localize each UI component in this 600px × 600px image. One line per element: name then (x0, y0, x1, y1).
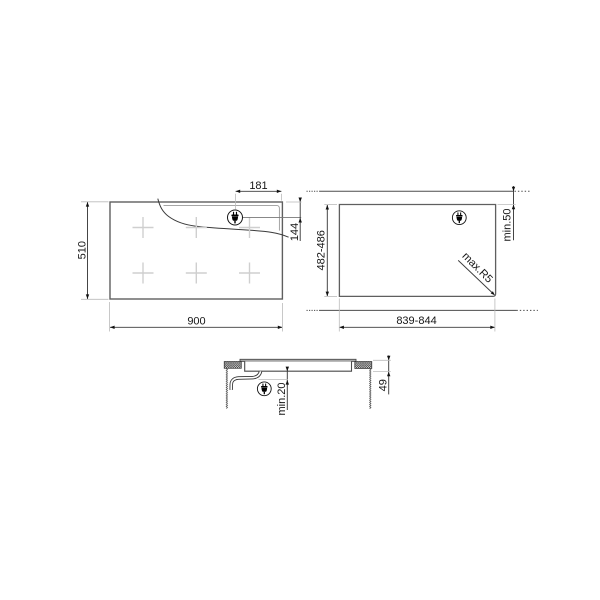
svg-text:max.R5: max.R5 (459, 250, 494, 285)
svg-text:144: 144 (289, 223, 301, 241)
svg-text:510: 510 (77, 241, 89, 259)
svg-text:min.50: min.50 (501, 208, 513, 241)
svg-text:49: 49 (378, 379, 390, 391)
svg-text:839-844: 839-844 (396, 315, 436, 327)
svg-text:min.20: min.20 (276, 382, 288, 415)
svg-text:181: 181 (249, 180, 267, 192)
svg-text:482-486: 482-486 (316, 230, 328, 270)
svg-text:900: 900 (187, 315, 205, 327)
